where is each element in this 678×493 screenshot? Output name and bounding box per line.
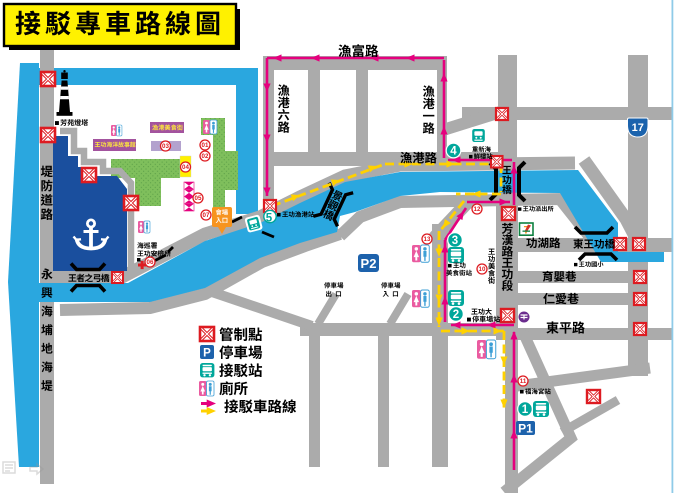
svg-text:07: 07 — [203, 212, 210, 219]
svg-text:17: 17 — [632, 122, 644, 134]
svg-text:5: 5 — [266, 213, 273, 225]
svg-text:3: 3 — [452, 235, 458, 247]
svg-text:03: 03 — [162, 143, 169, 150]
svg-text:2: 2 — [453, 309, 459, 321]
svg-text:11: 11 — [520, 378, 527, 385]
svg-text:10: 10 — [479, 266, 486, 273]
svg-text:P: P — [203, 348, 211, 360]
svg-text:1: 1 — [522, 404, 529, 416]
svg-text:04: 04 — [182, 164, 189, 171]
svg-text:P1: P1 — [518, 422, 533, 436]
svg-text:12: 12 — [474, 206, 481, 213]
svg-text:05: 05 — [195, 195, 202, 202]
svg-text:4: 4 — [450, 146, 457, 158]
svg-text:P2: P2 — [361, 256, 377, 271]
svg-text:01: 01 — [202, 142, 209, 149]
svg-text:02: 02 — [202, 153, 209, 160]
svg-text:13: 13 — [424, 236, 431, 243]
svg-text:06: 06 — [147, 259, 154, 266]
